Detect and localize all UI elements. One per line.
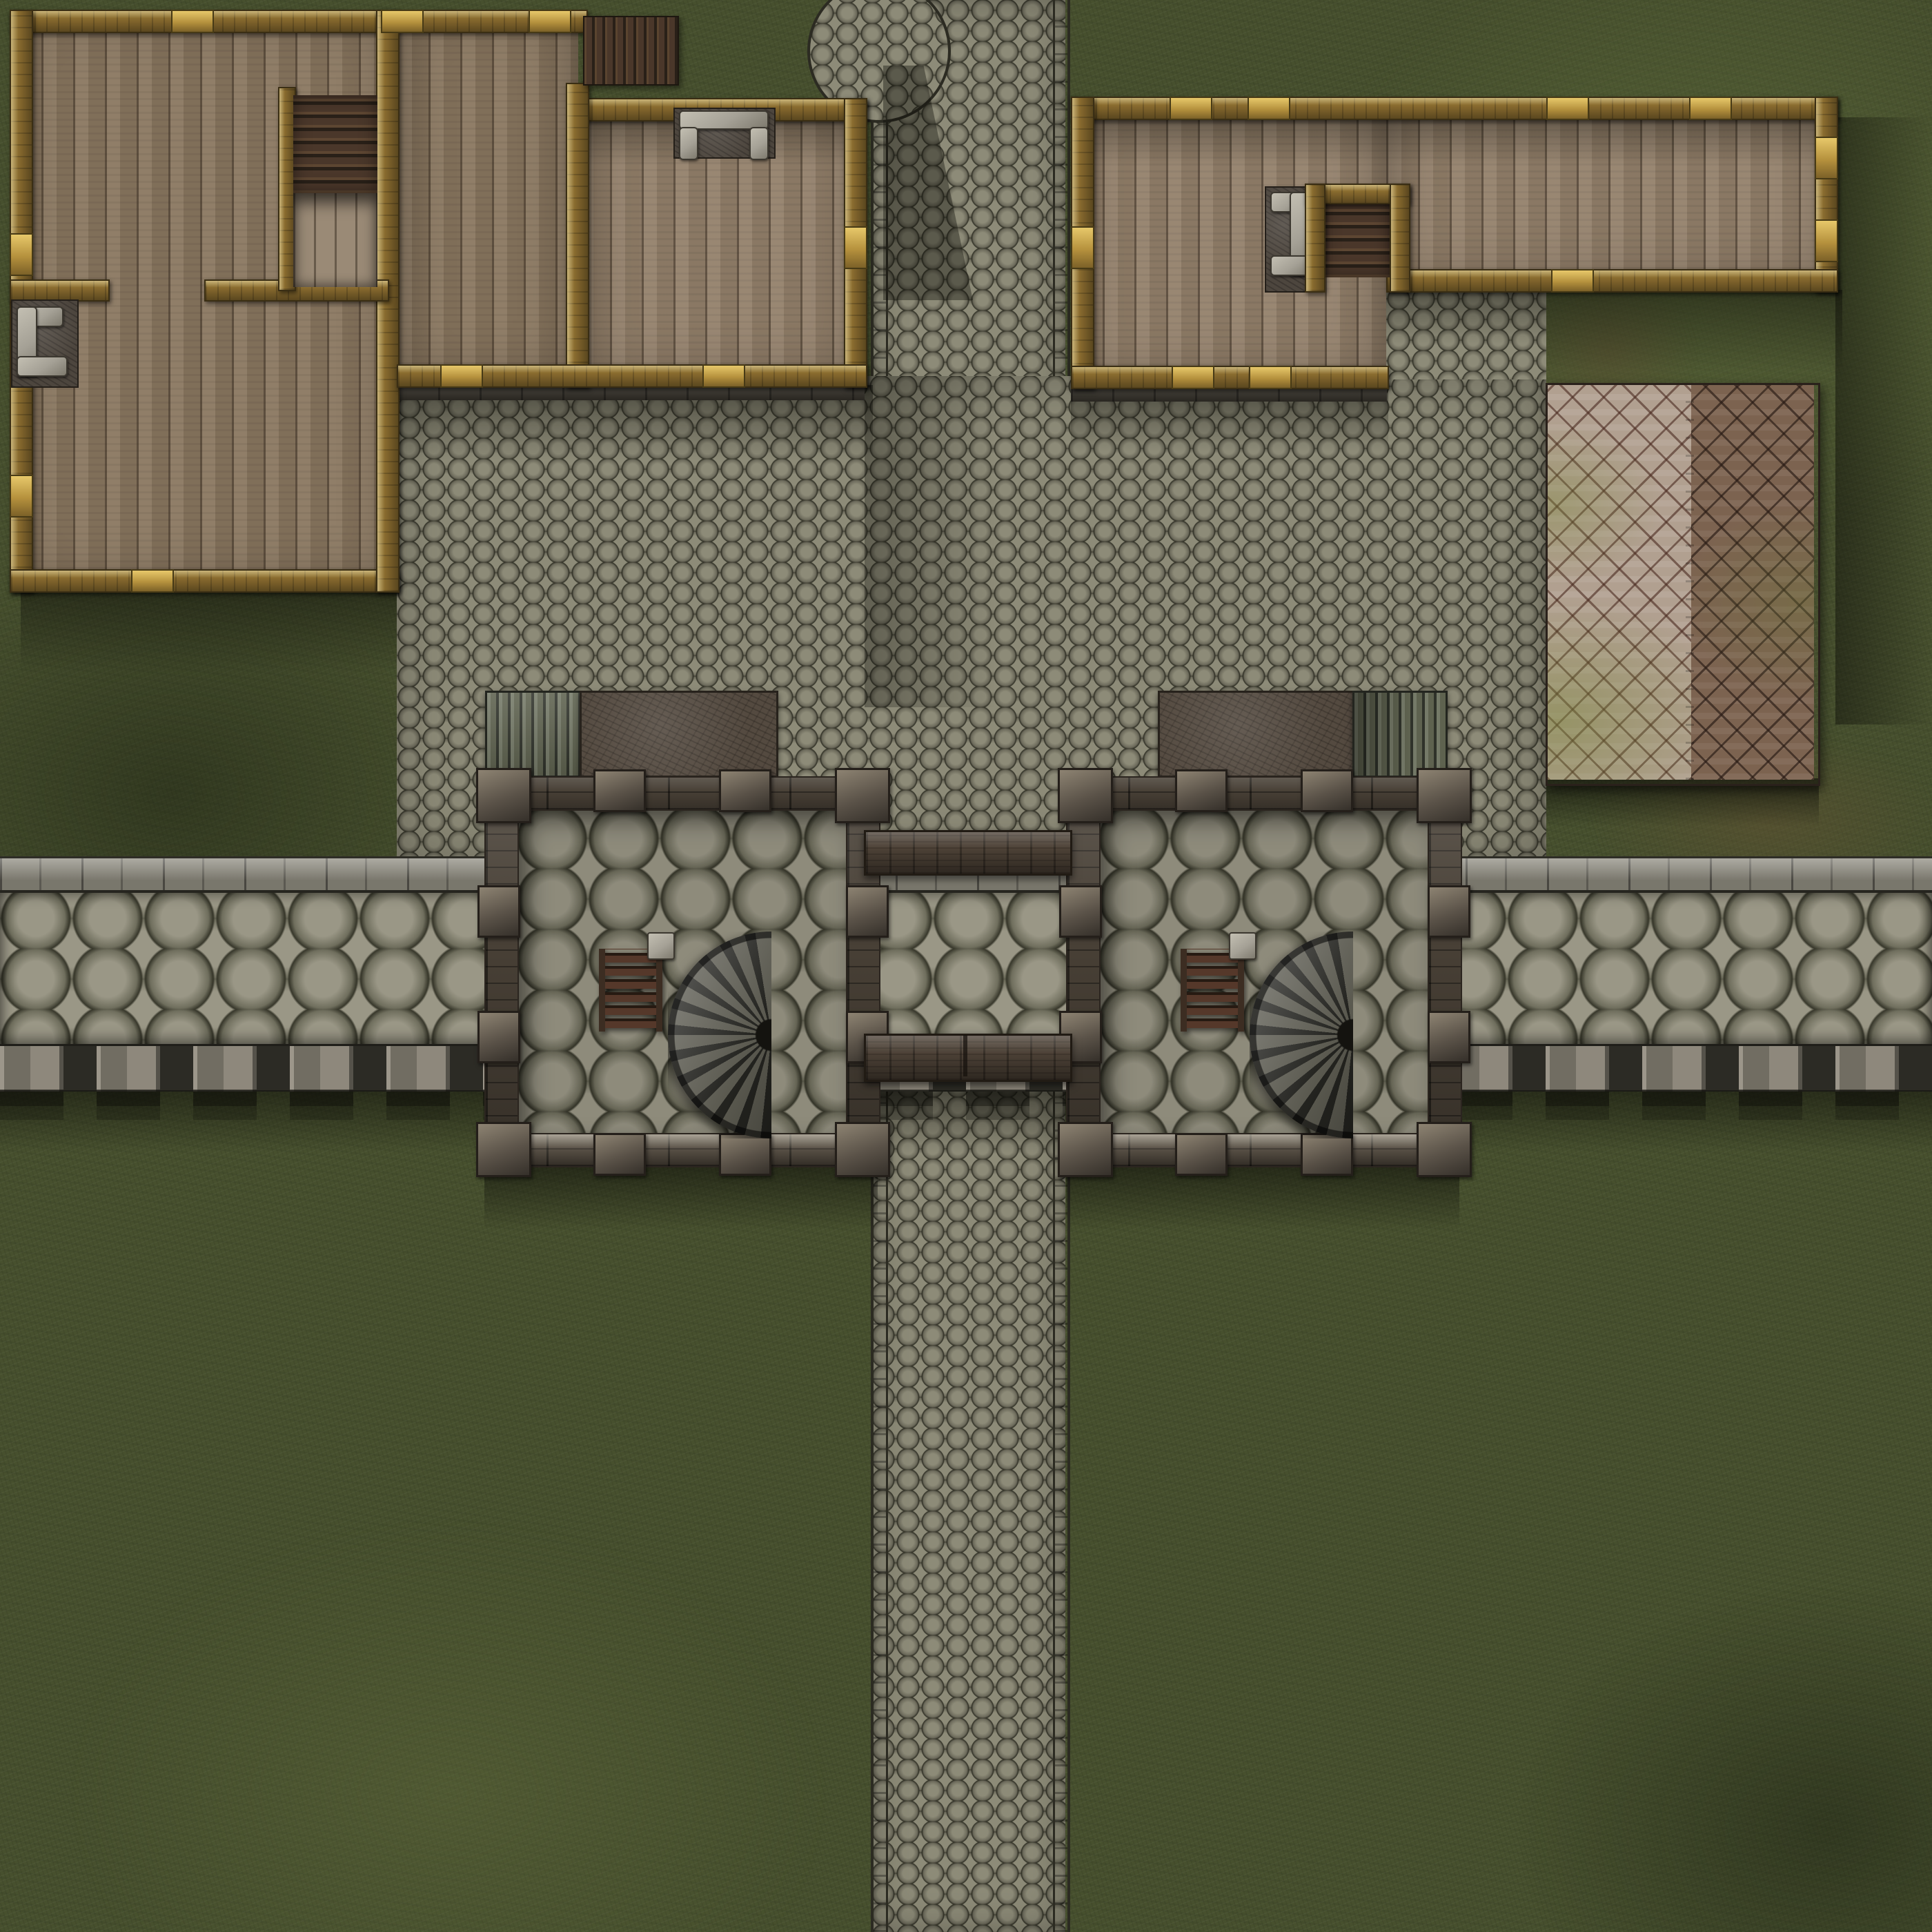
- shadow-under-tower-west: [484, 1165, 878, 1230]
- courtyard-shadow-right-of-left-building: [865, 376, 996, 707]
- tower-wall-south: [484, 1133, 880, 1167]
- tower-pilaster-nw: [476, 768, 531, 823]
- tower-pilaster-w1: [477, 885, 520, 938]
- tower-pilaster-sw: [476, 1122, 531, 1177]
- beam-tick: [1071, 226, 1094, 269]
- beam-tick: [529, 10, 571, 33]
- roof-half-light: [1548, 385, 1691, 780]
- ladder-rack: [599, 949, 662, 1032]
- stairwell-opening: [293, 193, 377, 287]
- beam-tick: [1170, 97, 1212, 120]
- gate-lintel-north: [864, 830, 1072, 876]
- tower-pilaster-n2: [1301, 769, 1353, 812]
- tower-wall-south: [1066, 1133, 1462, 1167]
- tower-wall-north: [1066, 776, 1462, 811]
- wall-b-right: [1815, 97, 1838, 293]
- wall-a1-internal-west: [10, 279, 110, 302]
- beam-tick: [702, 364, 745, 388]
- staircase-steps: [293, 95, 377, 193]
- shadow-right-of-right-building: [1835, 117, 1932, 724]
- wall-a-top: [10, 10, 588, 33]
- gatehouse-tower-east: [1066, 776, 1459, 1165]
- beam-tick: [1248, 97, 1290, 120]
- shadow-under-tower-east: [1066, 1165, 1459, 1230]
- tower-pilaster-s1: [1175, 1133, 1228, 1176]
- wall-b-bottom-main: [1071, 366, 1389, 389]
- grass-tint-bottomleft: [69, 1518, 828, 1932]
- tower-pilaster-s2: [1301, 1133, 1353, 1176]
- shadow-under-wing: [1546, 290, 1842, 373]
- tower-pilaster-w2: [477, 1011, 520, 1063]
- stairwell-b-steps: [1323, 201, 1390, 277]
- tower-pilaster-n1: [1175, 769, 1228, 812]
- tower-pilaster-ne: [835, 768, 890, 823]
- ladder-rack: [1181, 949, 1244, 1032]
- beam-tick: [440, 364, 483, 388]
- wall-landing-east: [1158, 691, 1357, 778]
- tower-pilaster-e1: [1428, 885, 1470, 938]
- wall-stairs-east: [1352, 691, 1448, 778]
- beam-tick: [1546, 97, 1589, 120]
- tower-pilaster-sw: [1058, 1122, 1113, 1177]
- tower-pilaster-se: [835, 1122, 890, 1177]
- wall-walkway: [0, 888, 1932, 1045]
- wall-a2-a3: [566, 83, 589, 388]
- fireplace-stone-left: [679, 127, 698, 160]
- shadow-under-left-building: [21, 590, 448, 673]
- tower-pilaster-s2: [719, 1133, 771, 1176]
- beam-tick: [10, 233, 33, 276]
- beam-tick: [1172, 366, 1214, 389]
- grass-tint-bottomright: [1518, 1587, 1932, 1932]
- roof-ridge-beam: [1686, 385, 1694, 780]
- beam-tick: [381, 10, 424, 33]
- tower-pilaster-e1: [846, 885, 889, 938]
- tower-pilaster-nw: [1058, 768, 1113, 823]
- shadow-under-wall: [0, 1090, 1932, 1152]
- stairwell-b-frame-left: [1305, 184, 1325, 293]
- log-porch: [583, 16, 679, 86]
- courtyard-notch-shadow: [1386, 288, 1546, 344]
- wall-landing-west: [580, 691, 778, 778]
- gate-lintel-seam: [963, 1035, 967, 1076]
- tower-pilaster-ne: [1417, 768, 1472, 823]
- wall-a1-bottom: [10, 569, 400, 593]
- roof-half-dark: [1691, 385, 1814, 780]
- wall-b-bottom-wing: [1386, 269, 1838, 293]
- tower-pilaster-n1: [593, 769, 646, 812]
- beam-tick: [1815, 137, 1838, 179]
- beam-tick: [10, 475, 33, 517]
- hearth-stone-bottom: [17, 356, 68, 377]
- tower-wall-west: [484, 776, 519, 1167]
- gatehouse-tower-west: [484, 776, 878, 1165]
- beam-tick: [844, 226, 867, 269]
- tower-pilaster-w1: [1059, 885, 1102, 938]
- stone-block-prop: [1229, 932, 1256, 960]
- beam-tick: [1551, 269, 1594, 293]
- beam-tick: [1689, 97, 1732, 120]
- tower-wall-north: [484, 776, 880, 811]
- left-building-room-mid-floor: [397, 10, 578, 385]
- map-canvas[interactable]: [0, 0, 1932, 1932]
- tower-wall-east: [1428, 776, 1462, 1167]
- tower-pilaster-se: [1417, 1122, 1472, 1177]
- tower-pilaster-n2: [719, 769, 771, 812]
- stairwell-b-frame-right: [1390, 184, 1410, 293]
- shingled-roof: [1546, 383, 1820, 786]
- fireplace-stone-right: [749, 127, 769, 160]
- tower-pilaster-e2: [1428, 1011, 1470, 1063]
- gate-lintel-south: [864, 1034, 1072, 1082]
- beam-tick: [171, 10, 214, 33]
- tower-pilaster-s1: [593, 1133, 646, 1176]
- wall-stairs-west: [485, 691, 584, 778]
- beam-tick: [1249, 366, 1292, 389]
- stone-block-prop: [647, 932, 675, 960]
- beam-tick: [1815, 219, 1838, 262]
- beam-tick: [131, 569, 174, 593]
- right-building-inner-shadow: [1092, 117, 1816, 166]
